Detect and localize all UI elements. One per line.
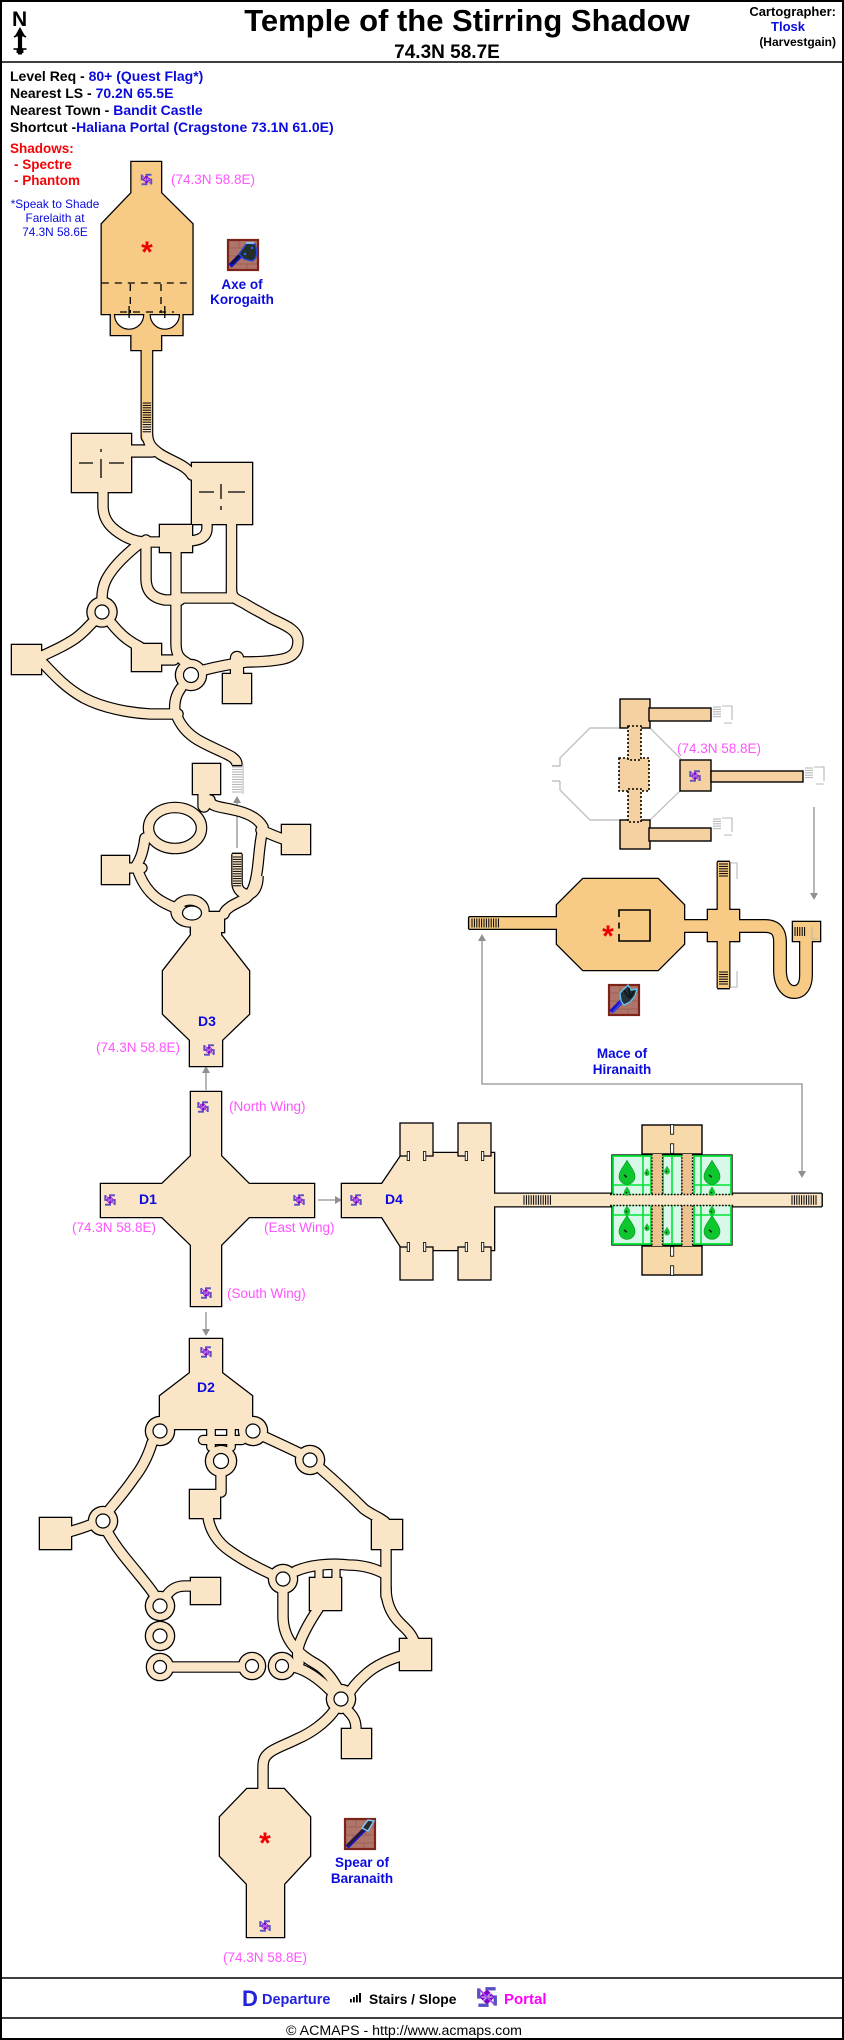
svg-text:Level Req - 80+ (Quest Flag*): Level Req - 80+ (Quest Flag*)	[10, 68, 203, 84]
svg-text:(East Wing): (East Wing)	[264, 1220, 335, 1235]
svg-text:Tlosk: Tlosk	[771, 19, 806, 34]
svg-text:(74.3N 58.8E): (74.3N 58.8E)	[677, 741, 761, 756]
svg-text:Baranaith: Baranaith	[331, 1871, 393, 1886]
svg-text:Departure: Departure	[262, 1992, 331, 2008]
svg-text:D: D	[242, 1986, 258, 2011]
svg-text:D4: D4	[385, 1191, 403, 1207]
svg-text:*: *	[259, 1827, 271, 1860]
svg-text:*Speak to Shade: *Speak to Shade	[11, 197, 100, 211]
svg-text:N: N	[12, 8, 27, 31]
svg-text:D1: D1	[139, 1191, 157, 1207]
svg-text:(South Wing): (South Wing)	[227, 1286, 306, 1301]
svg-text:Spear of: Spear of	[335, 1855, 390, 1870]
svg-text:- Phantom: - Phantom	[14, 173, 80, 188]
svg-text:Shortcut -Haliana Portal (Crag: Shortcut -Haliana Portal (Cragstone 73.1…	[10, 119, 334, 135]
svg-text:Cartographer:: Cartographer:	[749, 4, 836, 19]
svg-text:D3: D3	[198, 1013, 216, 1029]
svg-text:Temple of the Stirring Shadow: Temple of the Stirring Shadow	[244, 3, 690, 38]
svg-text:Stairs / Slope: Stairs / Slope	[369, 1992, 457, 2007]
svg-text:(74.3N 58.8E): (74.3N 58.8E)	[96, 1040, 180, 1055]
svg-text:Axe of: Axe of	[221, 277, 263, 292]
svg-text:(74.3N 58.8E): (74.3N 58.8E)	[171, 172, 255, 187]
svg-text:*: *	[602, 920, 614, 953]
svg-text:Farelaith at: Farelaith at	[25, 211, 85, 225]
svg-text:Hiranaith: Hiranaith	[593, 1062, 652, 1077]
svg-text:(Harvestgain): (Harvestgain)	[759, 35, 836, 49]
svg-text:Nearest LS - 70.2N 65.5E: Nearest LS - 70.2N 65.5E	[10, 85, 173, 101]
svg-text:(North Wing): (North Wing)	[229, 1099, 306, 1114]
svg-text:Nearest Town - Bandit Castle: Nearest Town - Bandit Castle	[10, 102, 203, 118]
svg-text:Korogaith: Korogaith	[210, 292, 274, 307]
svg-text:Portal: Portal	[504, 1991, 547, 2008]
svg-text:74.3N 58.6E: 74.3N 58.6E	[22, 225, 88, 239]
svg-text:© ACMAPS - http://www.acmaps.c: © ACMAPS - http://www.acmaps.com	[286, 2023, 522, 2039]
svg-text:- Spectre: - Spectre	[14, 157, 72, 172]
svg-text:(74.3N 58.8E): (74.3N 58.8E)	[223, 1950, 307, 1965]
svg-text:Mace of: Mace of	[597, 1046, 648, 1061]
svg-text:74.3N 58.7E: 74.3N 58.7E	[394, 42, 500, 63]
svg-text:*: *	[141, 236, 153, 269]
svg-text:(74.3N 58.8E): (74.3N 58.8E)	[72, 1220, 156, 1235]
svg-text:Shadows:: Shadows:	[10, 141, 74, 156]
svg-text:D2: D2	[197, 1379, 215, 1395]
